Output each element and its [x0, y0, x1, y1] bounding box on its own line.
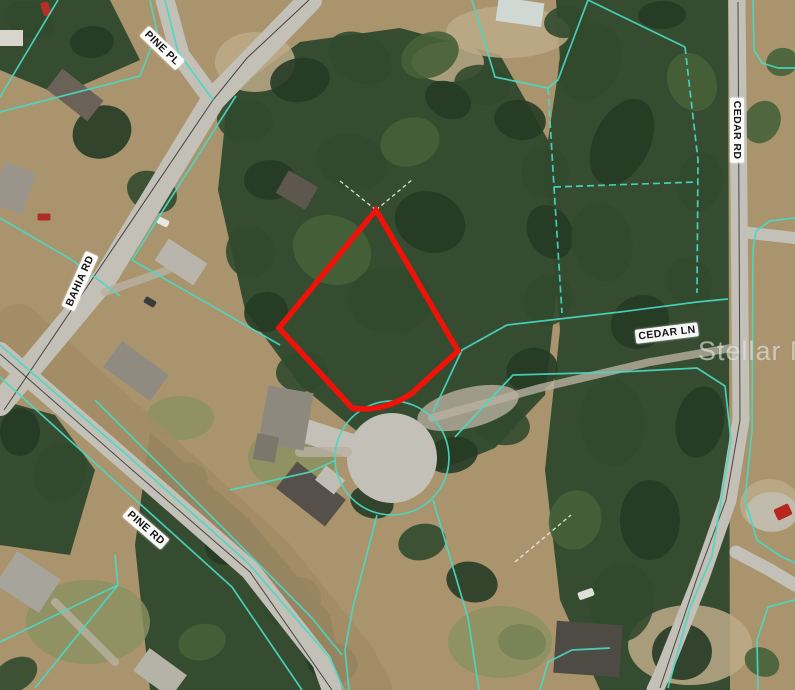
- building-roof: [253, 433, 279, 462]
- tree-canopy: [620, 480, 680, 560]
- satellite-map-canvas: [0, 0, 795, 690]
- vehicle: [38, 214, 51, 221]
- lawn-patch: [448, 606, 552, 678]
- watermark-stellar-mls: Stellar MLS: [698, 336, 795, 367]
- aerial-map[interactable]: PINE PL BAHIA RD CEDAR RD CEDAR LN PINE …: [0, 0, 795, 690]
- tree-canopy: [348, 266, 432, 334]
- building-roof: [0, 30, 23, 46]
- road: [741, 232, 795, 238]
- road-label-cedar-rd: CEDAR RD: [730, 98, 744, 163]
- cul-de-sac-pavement: [347, 413, 437, 503]
